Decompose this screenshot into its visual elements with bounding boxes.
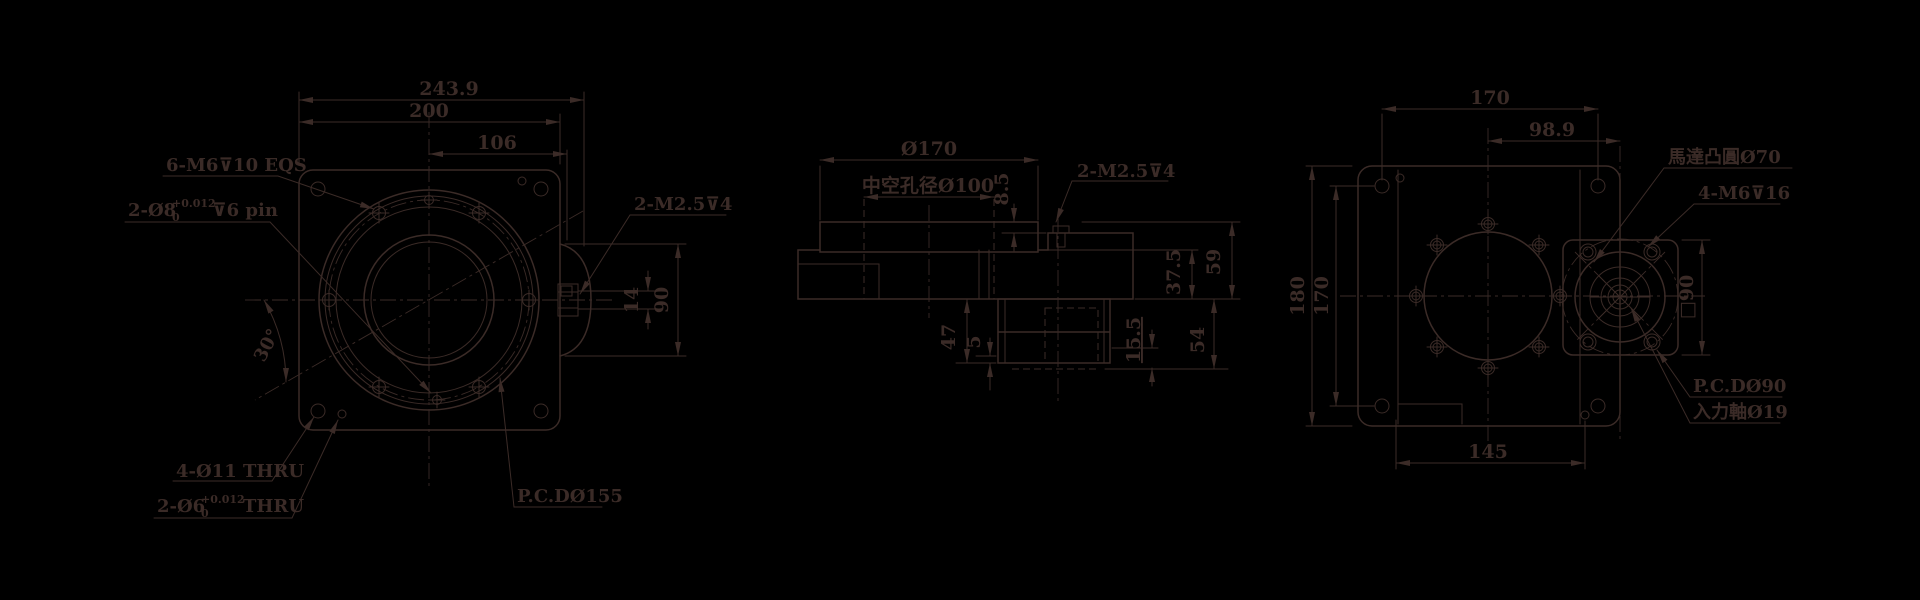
dim-center-to-edge: 106 — [477, 132, 517, 154]
dim-body-height: 37.5 — [1163, 249, 1185, 295]
label-pcd: P.C.DØ155 — [517, 486, 623, 507]
dim-shaft-boss-height: 90 — [651, 287, 673, 313]
dim-hole-spacing-vertical: 170 — [1311, 276, 1333, 316]
label-set-screws: 2-M2.5⊽4 — [634, 194, 732, 215]
label-pin6-suffix: THRU — [243, 496, 304, 517]
dim-outer-dia: Ø170 — [901, 138, 957, 160]
dim-motor-inset: 15.5 — [1123, 317, 1145, 363]
dim-total-width: 243.9 — [419, 78, 479, 100]
label-pin6-prefix: 2-Ø6 — [157, 496, 205, 517]
dim-motor-square: □90 — [1676, 275, 1698, 319]
label-set-screws: 2-M2.5⊽4 — [1077, 161, 1175, 182]
dim-total-height: 59 — [1203, 249, 1225, 275]
engineering-drawing: 30° 243.9 200 106 14 90 6-M6⊽10 EQS 2-Ø8… — [0, 0, 1920, 600]
label-motor-screws: 4-M6⊽16 — [1698, 183, 1790, 204]
label-tap-holes: 6-M6⊽10 EQS — [166, 155, 307, 176]
dim-gear-height: 47 — [938, 324, 960, 350]
label-thru-holes: 4-Ø11 THRU — [176, 461, 304, 482]
dim-motor-section: 54 — [1187, 327, 1209, 353]
label-pin8-tol-upper: +0.012 — [172, 197, 216, 210]
dim-height: 180 — [1287, 276, 1309, 316]
dim-flange-width: 200 — [409, 100, 449, 122]
label-bore: 中空孔径Ø100 — [862, 174, 994, 197]
label-pin6-tol-upper: +0.012 — [201, 493, 245, 506]
label-input-shaft: 入力軸Ø19 — [1693, 401, 1788, 423]
dim-width: 170 — [1470, 87, 1510, 109]
dim-axis-distance: 98.9 — [1529, 119, 1575, 141]
cad-drawing-canvas: 30° 243.9 200 106 14 90 6-M6⊽10 EQS 2-Ø8… — [0, 0, 1920, 600]
label-motor-boss: 馬達凸圓Ø70 — [1668, 147, 1781, 168]
dim-hole-spacing-bottom: 145 — [1468, 441, 1508, 463]
dim-base-plate: 5 — [963, 335, 985, 348]
label-pin8-suffix: ⊽6 pin — [212, 200, 278, 221]
label-pcd: P.C.DØ90 — [1693, 376, 1786, 397]
dim-keyway-height: 14 — [621, 287, 643, 313]
label-pin8-prefix: 2-Ø8 — [128, 200, 176, 221]
dim-table-step: 8.5 — [991, 172, 1013, 205]
